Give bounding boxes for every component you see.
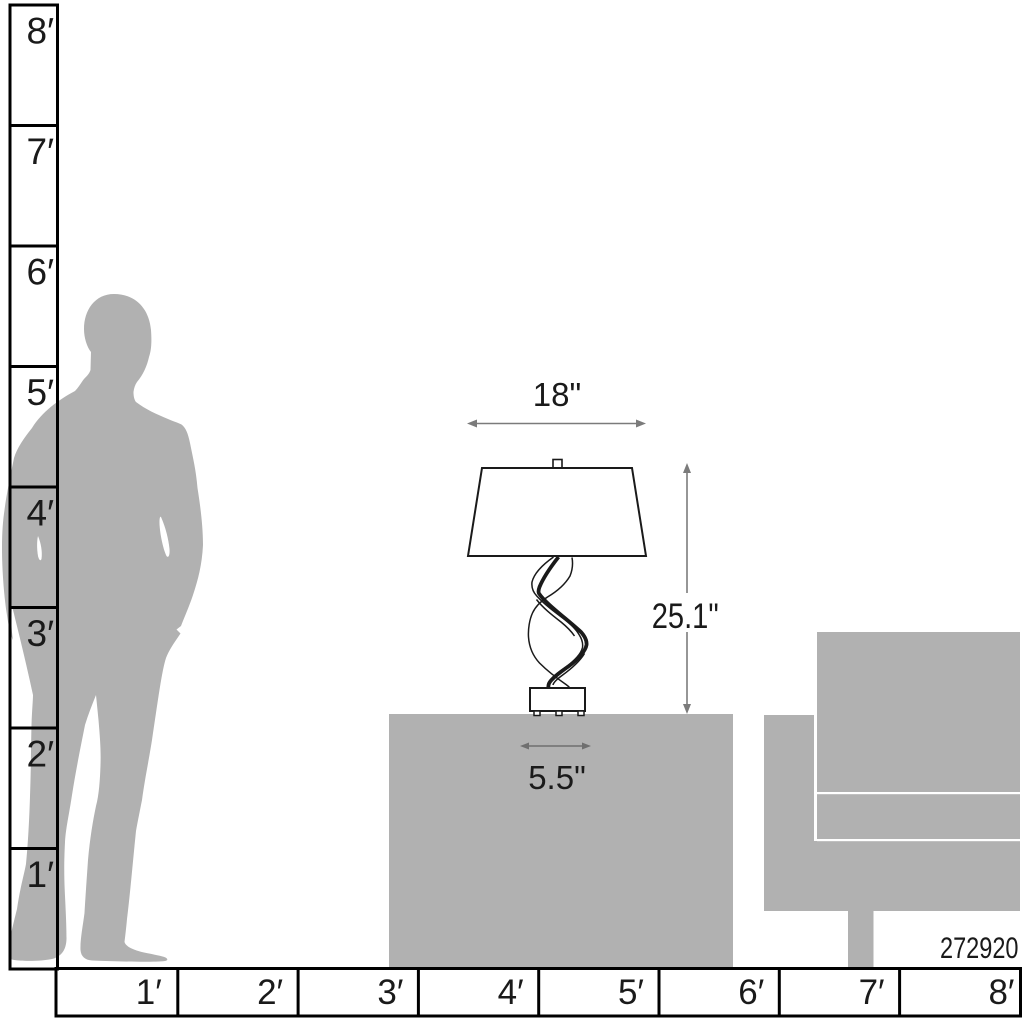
svg-text:5′: 5′	[618, 973, 644, 1012]
svg-text:5.5": 5.5"	[528, 759, 586, 796]
svg-text:1′: 1′	[136, 973, 162, 1012]
svg-text:1′: 1′	[27, 854, 55, 895]
svg-text:2′: 2′	[27, 734, 55, 775]
svg-text:25.1": 25.1"	[652, 597, 719, 636]
svg-text:272920: 272920	[940, 932, 1019, 965]
svg-text:4′: 4′	[27, 493, 55, 534]
svg-text:2′: 2′	[257, 973, 283, 1012]
svg-text:7′: 7′	[859, 973, 885, 1012]
svg-text:3′: 3′	[27, 613, 55, 654]
svg-text:8′: 8′	[27, 11, 55, 52]
svg-text:6′: 6′	[27, 252, 55, 293]
svg-text:7′: 7′	[27, 131, 55, 172]
svg-text:8′: 8′	[988, 973, 1014, 1012]
svg-text:18": 18"	[533, 376, 581, 413]
svg-text:4′: 4′	[498, 973, 524, 1012]
svg-text:6′: 6′	[738, 973, 764, 1012]
svg-text:5′: 5′	[27, 372, 55, 413]
svg-text:3′: 3′	[377, 973, 403, 1012]
